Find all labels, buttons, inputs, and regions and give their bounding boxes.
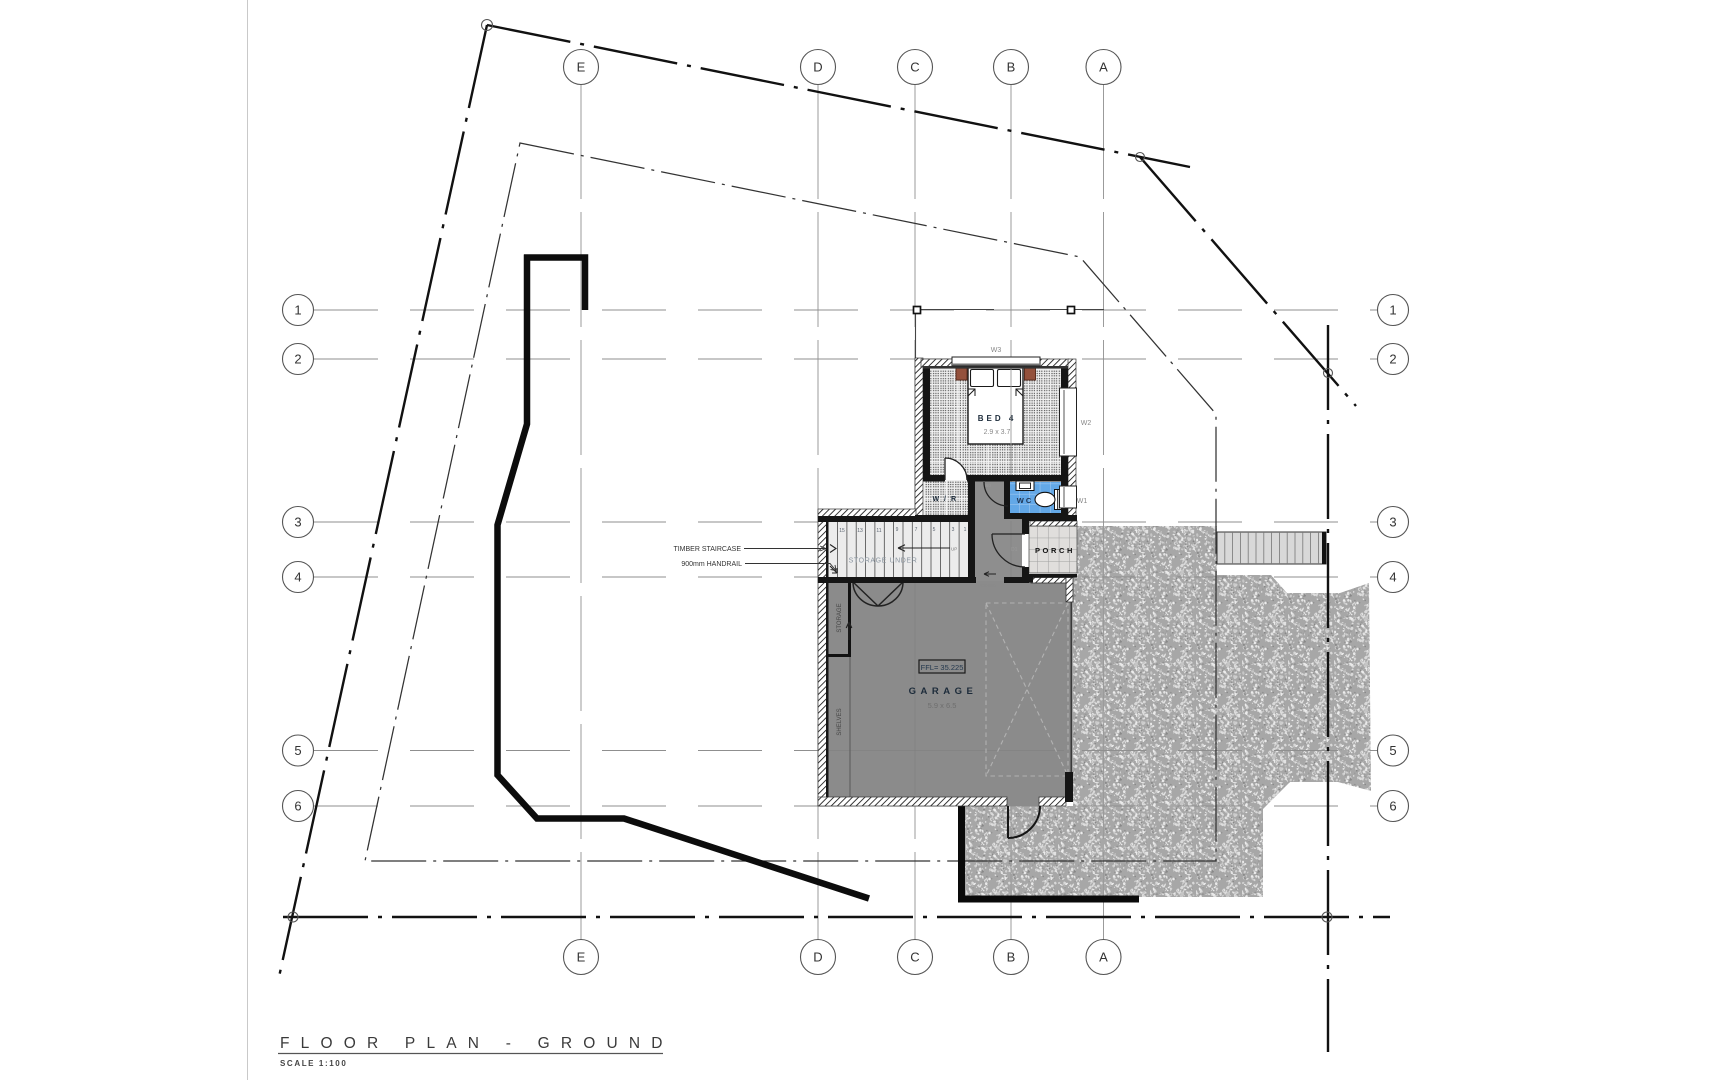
svg-text:A: A <box>1099 60 1108 75</box>
svg-text:D2: D2 <box>1016 813 1023 819</box>
svg-text:C: C <box>910 60 919 75</box>
svg-text:D: D <box>813 60 822 75</box>
svg-text:900mm HANDRAIL: 900mm HANDRAIL <box>681 561 742 568</box>
svg-text:7: 7 <box>915 527 918 533</box>
svg-text:E: E <box>577 950 586 965</box>
svg-text:1: 1 <box>964 527 967 533</box>
svg-text:E: E <box>577 60 586 75</box>
svg-text:W2: W2 <box>1081 420 1092 427</box>
svg-text:PORCH: PORCH <box>1035 546 1075 555</box>
svg-text:6: 6 <box>294 799 301 814</box>
svg-text:3: 3 <box>294 515 301 530</box>
svg-text:G1: G1 <box>1079 683 1086 689</box>
svg-text:1: 1 <box>1389 303 1396 318</box>
svg-text:4: 4 <box>1389 570 1396 585</box>
svg-text:5: 5 <box>933 527 936 533</box>
svg-text:D: D <box>813 950 822 965</box>
svg-text:4: 4 <box>294 570 301 585</box>
svg-text:5: 5 <box>294 743 301 758</box>
svg-text:UP: UP <box>951 547 957 552</box>
svg-text:C: C <box>910 950 919 965</box>
svg-text:STORAGE UNDER: STORAGE UNDER <box>849 558 918 565</box>
svg-text:FLOOR PLAN - GROUND: FLOOR PLAN - GROUND <box>280 1035 674 1052</box>
svg-text:2: 2 <box>1389 352 1396 367</box>
svg-text:BED 4: BED 4 <box>978 414 1017 423</box>
svg-text:2: 2 <box>294 352 301 367</box>
svg-text:1: 1 <box>294 303 301 318</box>
svg-text:3: 3 <box>952 527 955 533</box>
svg-text:11: 11 <box>876 528 881 534</box>
svg-text:GARAGE: GARAGE <box>909 686 978 697</box>
svg-text:3: 3 <box>1389 515 1396 530</box>
svg-text:W / R: W / R <box>933 496 958 503</box>
svg-text:TIMBER STAIRCASE: TIMBER STAIRCASE <box>673 546 741 553</box>
svg-text:STORAGE: STORAGE <box>837 603 843 632</box>
svg-text:W3: W3 <box>991 347 1002 354</box>
svg-text:CS-860: CS-860 <box>980 583 996 588</box>
svg-text:SCALE 1:100: SCALE 1:100 <box>280 1059 347 1068</box>
svg-text:5: 5 <box>1389 743 1396 758</box>
svg-text:D1: D1 <box>1011 547 1018 553</box>
svg-text:FFL= 35.225: FFL= 35.225 <box>921 663 964 672</box>
svg-text:13: 13 <box>857 528 863 534</box>
svg-text:W1: W1 <box>1077 498 1088 505</box>
svg-text:SHELVES: SHELVES <box>837 708 843 735</box>
svg-text:15: 15 <box>839 528 845 534</box>
svg-text:9: 9 <box>896 527 899 533</box>
svg-text:B: B <box>1007 60 1016 75</box>
svg-text:B: B <box>1007 950 1016 965</box>
svg-text:2.9 x 3.7: 2.9 x 3.7 <box>984 429 1011 436</box>
svg-text:A: A <box>1099 950 1108 965</box>
svg-text:WC: WC <box>1017 496 1034 505</box>
svg-text:5.9 x 6.5: 5.9 x 6.5 <box>928 701 957 710</box>
svg-text:6: 6 <box>1389 799 1396 814</box>
